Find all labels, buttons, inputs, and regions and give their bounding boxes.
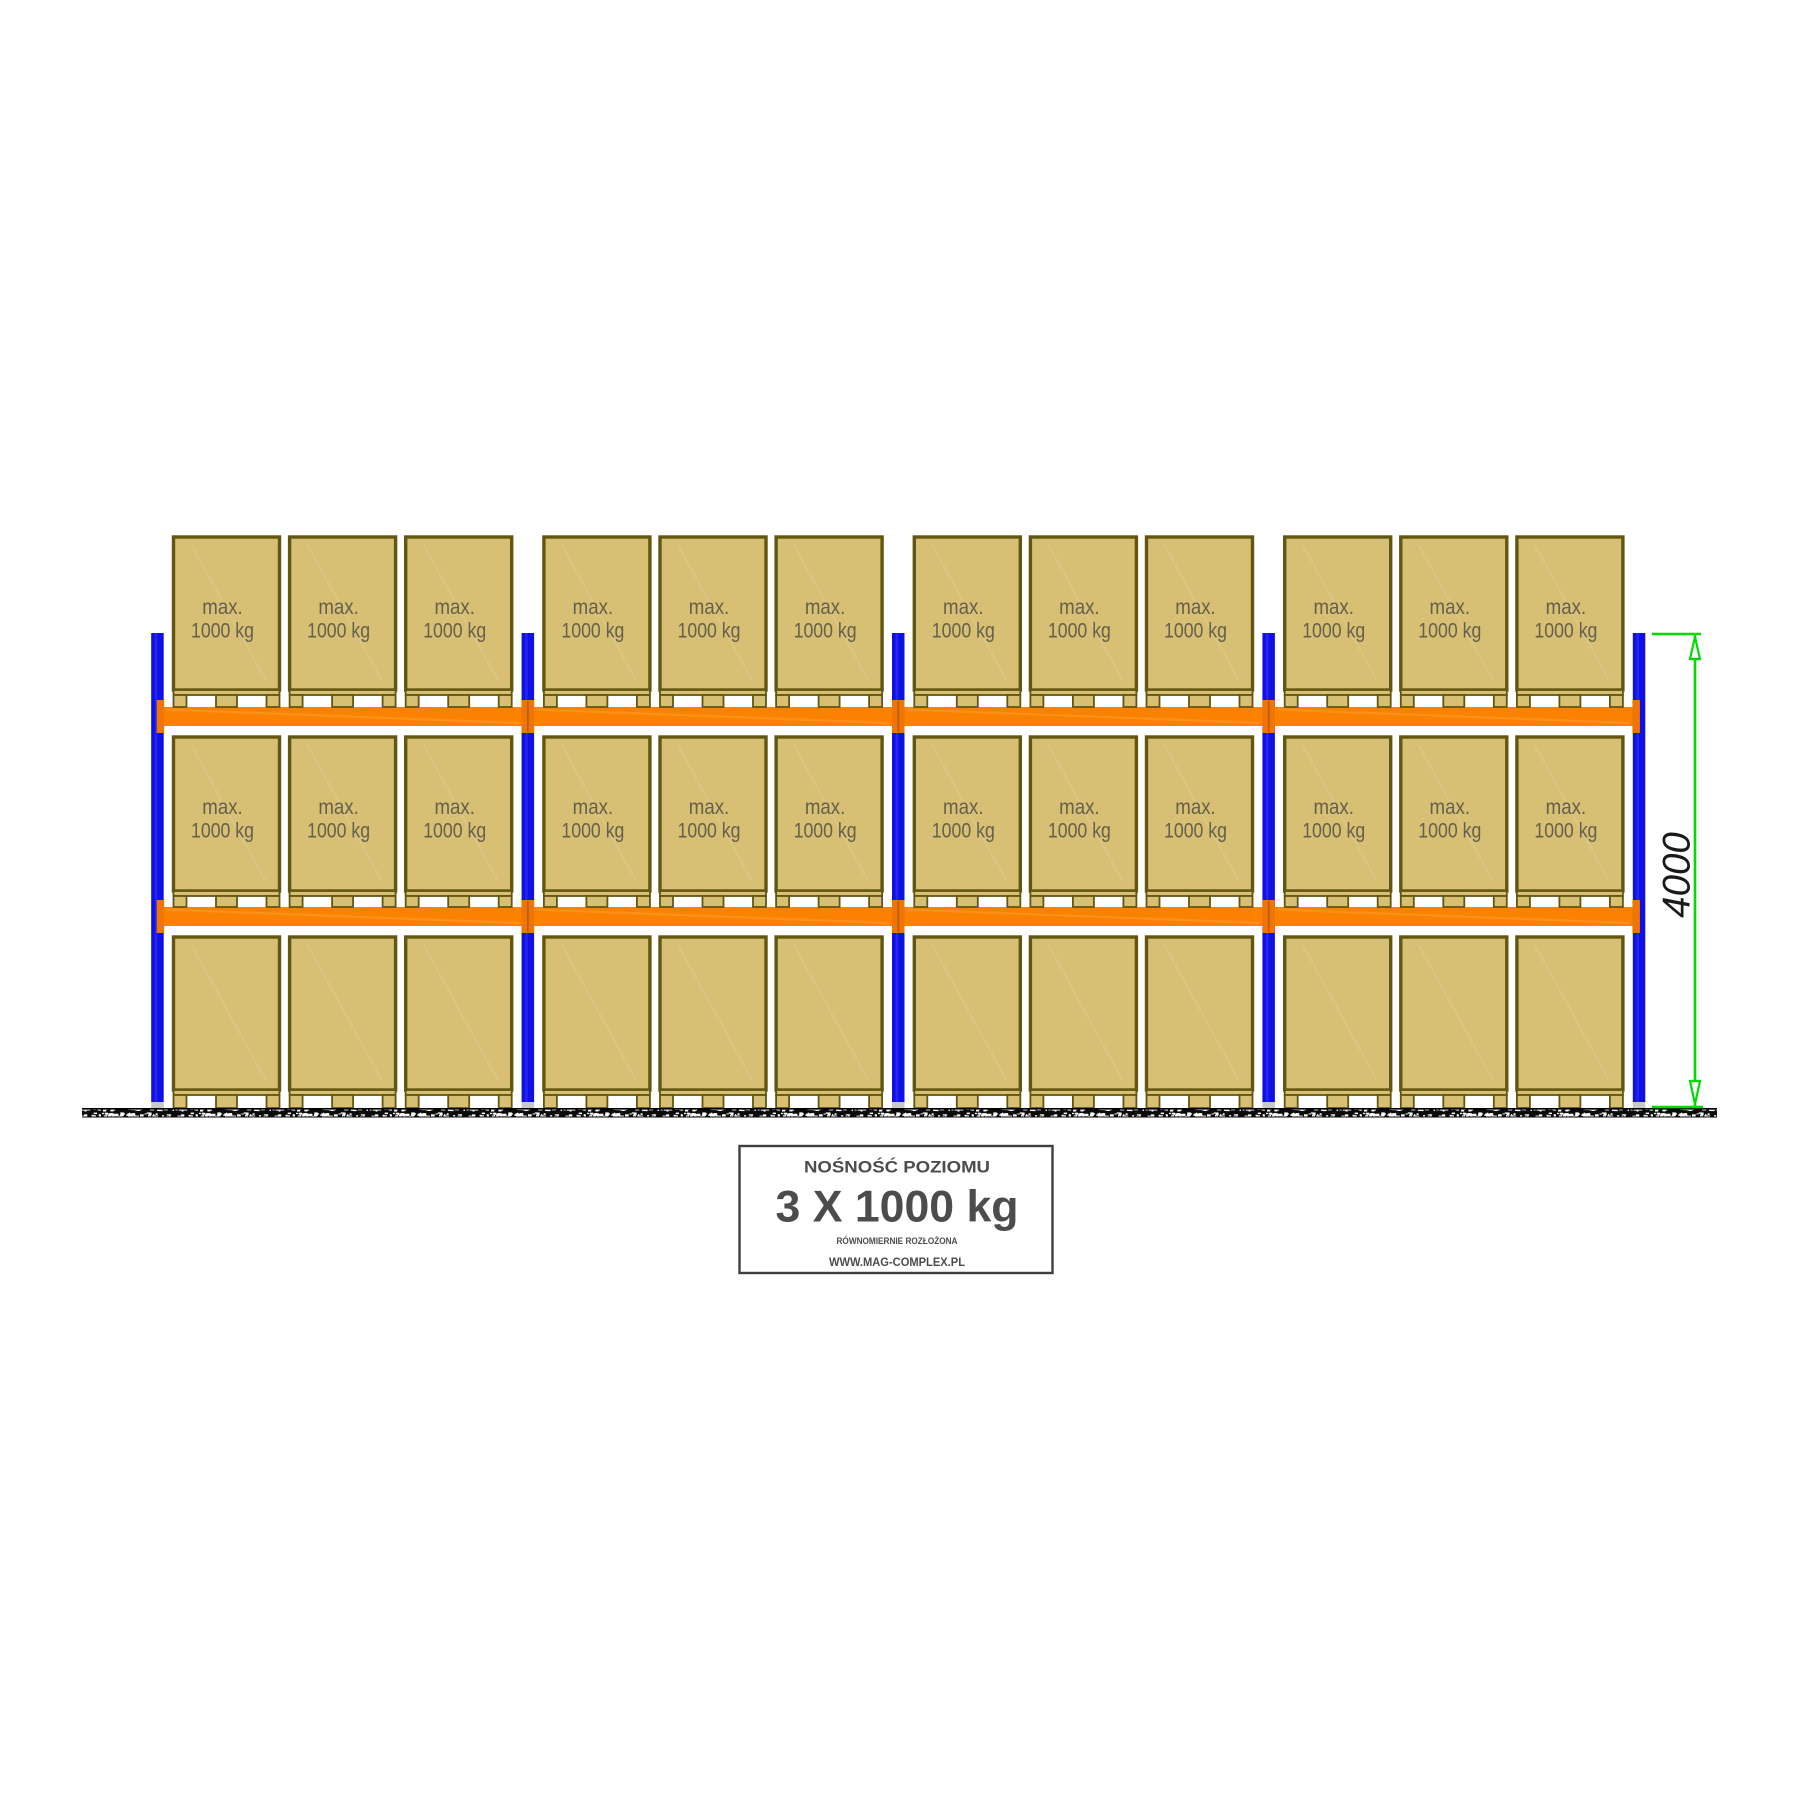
svg-text:1000 kg: 1000 kg [932, 618, 995, 642]
svg-text:1000 kg: 1000 kg [678, 818, 741, 842]
svg-text:max.: max. [943, 595, 984, 619]
svg-text:max.: max. [805, 595, 846, 619]
svg-text:max.: max. [573, 595, 614, 619]
svg-text:max.: max. [202, 795, 243, 819]
svg-text:RÓWNOMIERNIE ROZŁOŻONA: RÓWNOMIERNIE ROZŁOŻONA [837, 1235, 958, 1246]
svg-text:1000 kg: 1000 kg [561, 818, 624, 842]
svg-text:1000 kg: 1000 kg [1302, 618, 1365, 642]
svg-text:max.: max. [1546, 595, 1587, 619]
svg-text:NOŚNOŚĆ POZIOMU: NOŚNOŚĆ POZIOMU [804, 1158, 990, 1177]
svg-text:1000 kg: 1000 kg [1164, 818, 1227, 842]
svg-text:1000 kg: 1000 kg [794, 618, 857, 642]
svg-text:max.: max. [1430, 595, 1471, 619]
svg-text:1000 kg: 1000 kg [794, 818, 857, 842]
svg-text:WWW.MAG-COMPLEX.PL: WWW.MAG-COMPLEX.PL [829, 1257, 965, 1269]
svg-text:1000 kg: 1000 kg [423, 618, 486, 642]
svg-text:max.: max. [1175, 595, 1216, 619]
svg-text:max.: max. [689, 595, 730, 619]
svg-text:max.: max. [805, 795, 846, 819]
svg-text:max.: max. [1313, 595, 1354, 619]
svg-text:1000 kg: 1000 kg [1418, 818, 1481, 842]
svg-text:1000 kg: 1000 kg [678, 618, 741, 642]
svg-text:1000 kg: 1000 kg [307, 818, 370, 842]
svg-text:1000 kg: 1000 kg [307, 618, 370, 642]
svg-text:4000: 4000 [1656, 832, 1699, 918]
svg-text:max.: max. [1313, 795, 1354, 819]
svg-text:1000 kg: 1000 kg [1534, 618, 1597, 642]
svg-text:1000 kg: 1000 kg [1164, 618, 1227, 642]
svg-text:max.: max. [1430, 795, 1471, 819]
svg-text:1000 kg: 1000 kg [1534, 818, 1597, 842]
svg-text:max.: max. [318, 595, 359, 619]
svg-text:1000 kg: 1000 kg [1048, 818, 1111, 842]
svg-text:max.: max. [434, 795, 475, 819]
svg-text:max.: max. [318, 795, 359, 819]
svg-text:1000 kg: 1000 kg [932, 818, 995, 842]
svg-text:max.: max. [1059, 795, 1100, 819]
svg-text:max.: max. [943, 795, 984, 819]
svg-text:1000 kg: 1000 kg [561, 618, 624, 642]
svg-text:1000 kg: 1000 kg [191, 618, 254, 642]
svg-text:max.: max. [1175, 795, 1216, 819]
svg-text:max.: max. [202, 595, 243, 619]
svg-text:1000 kg: 1000 kg [1048, 618, 1111, 642]
svg-text:1000 kg: 1000 kg [1418, 618, 1481, 642]
svg-text:max.: max. [573, 795, 614, 819]
svg-text:3 X 1000 kg: 3 X 1000 kg [776, 1183, 1019, 1232]
svg-text:1000 kg: 1000 kg [1302, 818, 1365, 842]
svg-text:1000 kg: 1000 kg [423, 818, 486, 842]
svg-text:max.: max. [1546, 795, 1587, 819]
svg-text:max.: max. [434, 595, 475, 619]
svg-text:max.: max. [689, 795, 730, 819]
svg-text:max.: max. [1059, 595, 1100, 619]
svg-text:1000 kg: 1000 kg [191, 818, 254, 842]
